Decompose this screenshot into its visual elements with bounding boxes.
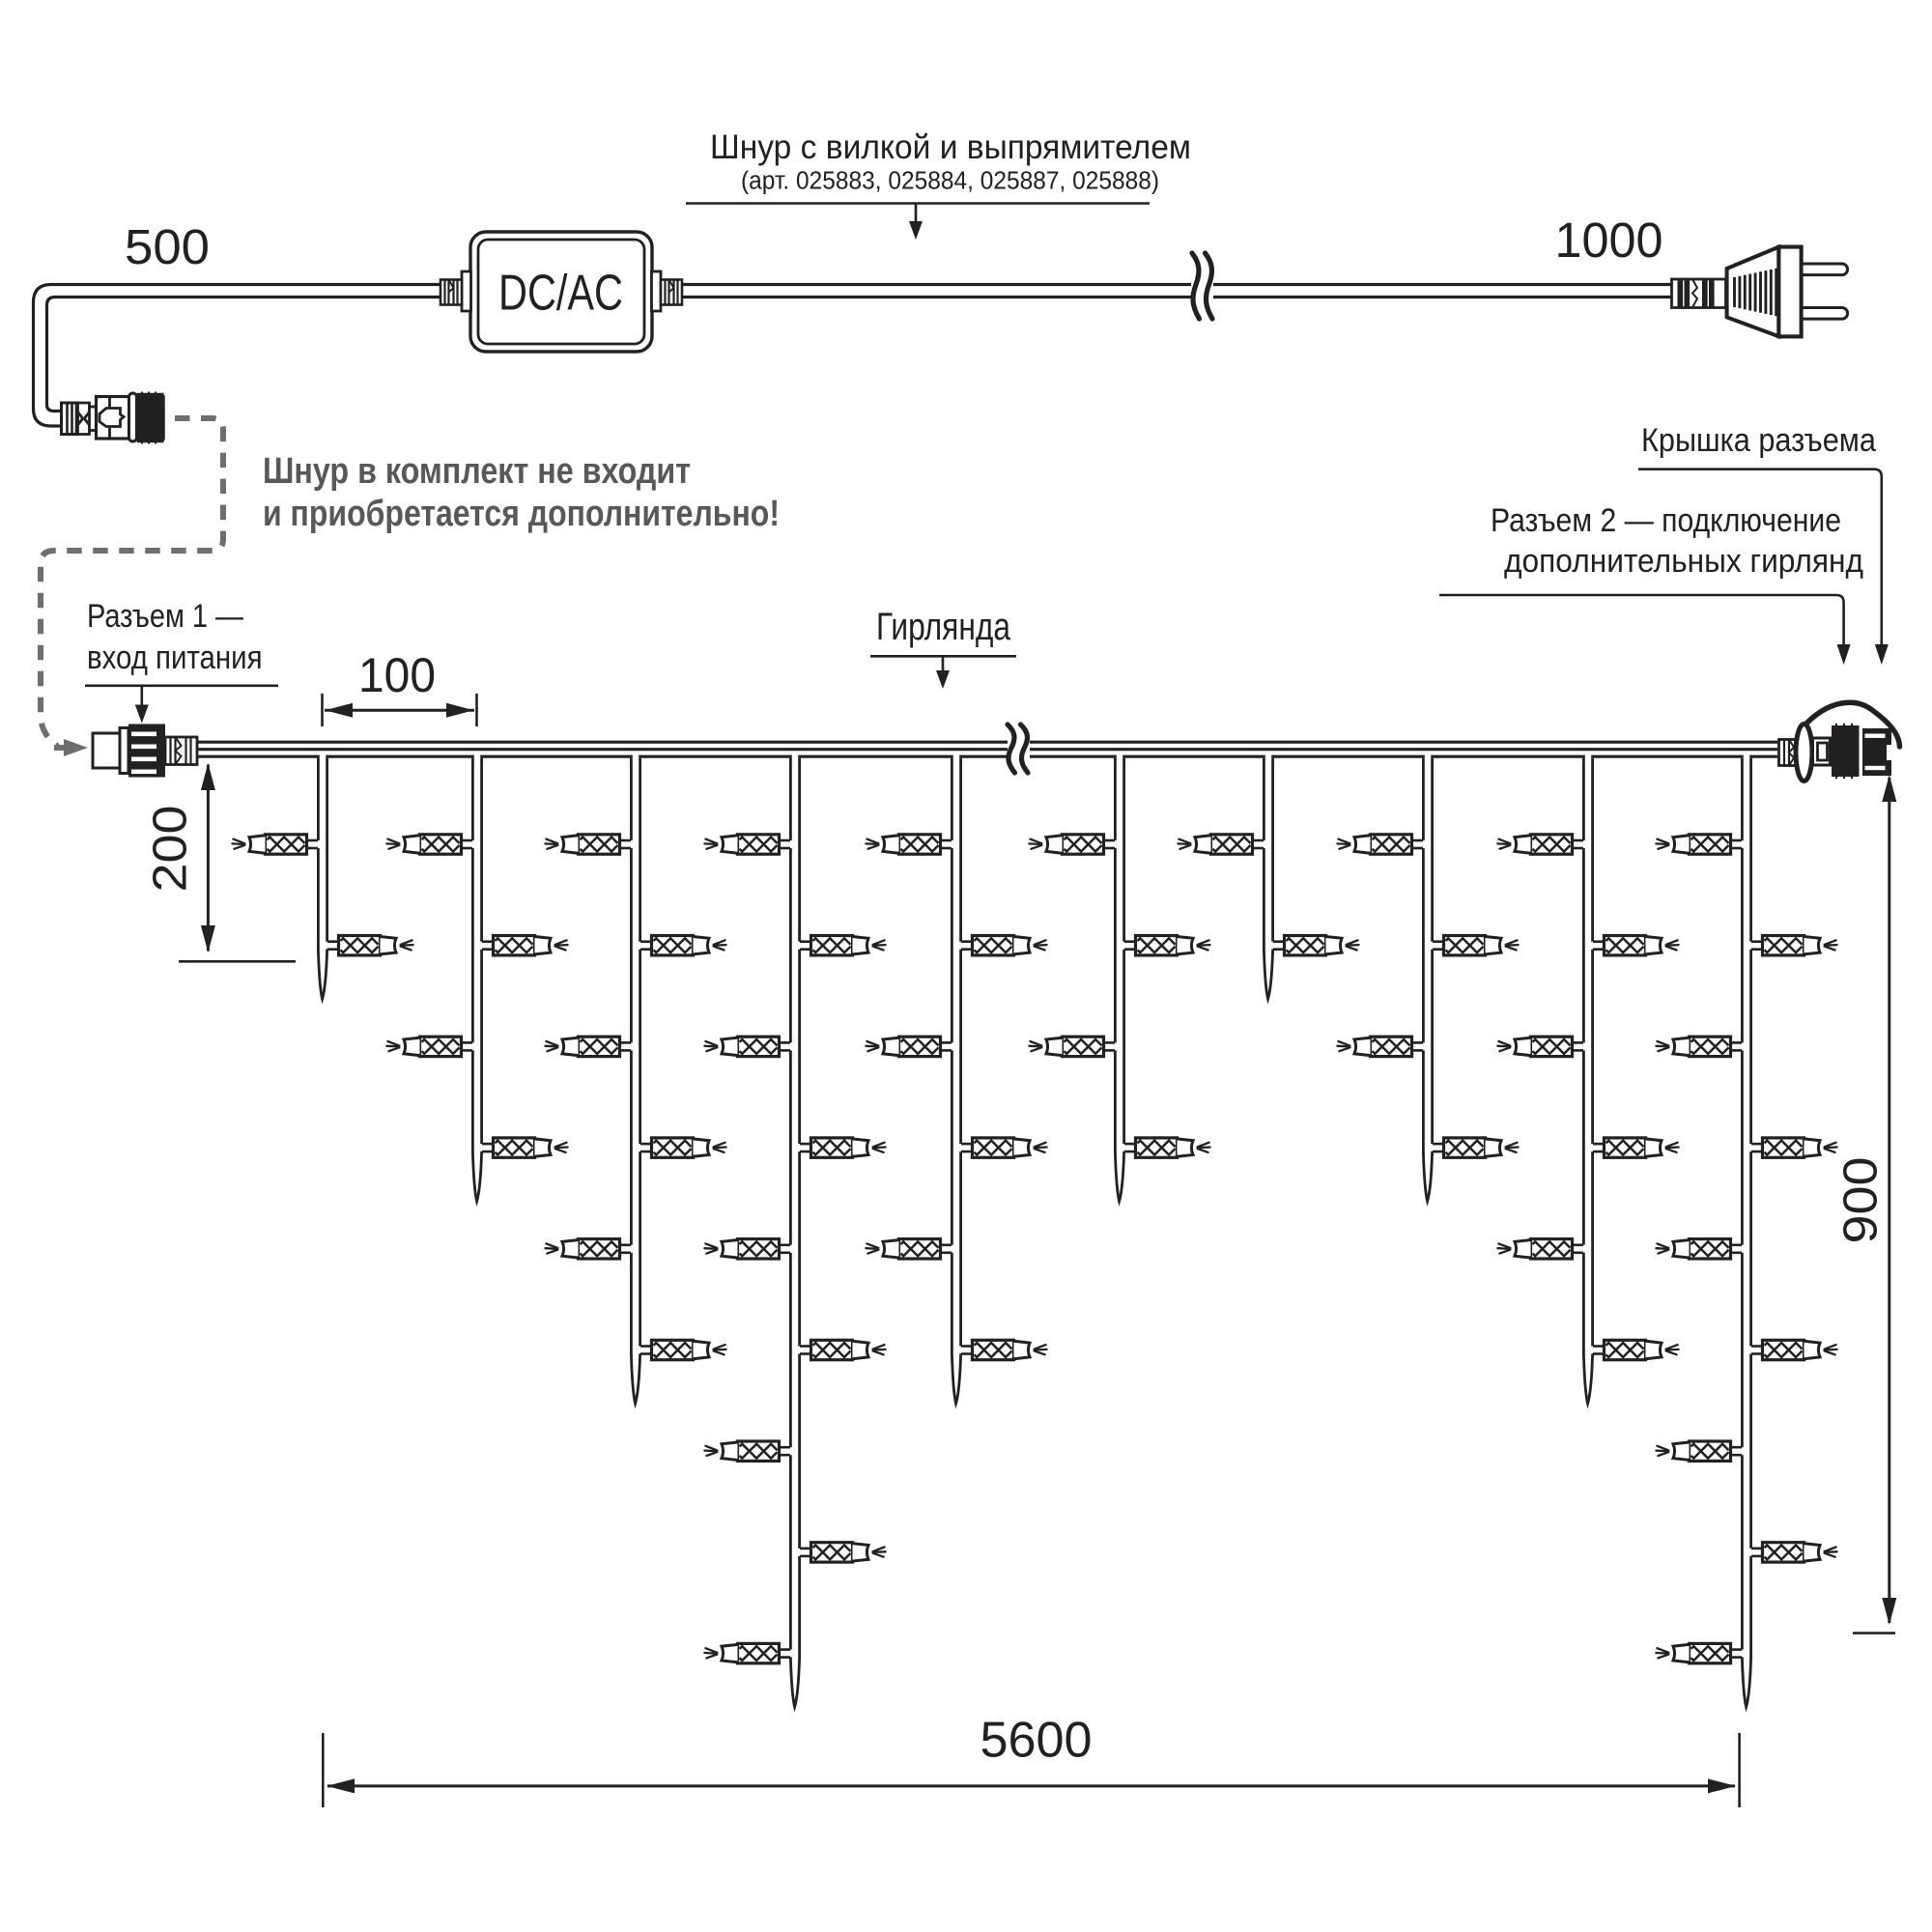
svg-text:1000: 1000	[1555, 213, 1663, 268]
svg-text:900: 900	[1835, 1157, 1888, 1244]
svg-text:Шнур с вилкой и выпрямителем: Шнур с вилкой и выпрямителем	[710, 128, 1191, 166]
svg-text:дополнительных гирлянд: дополнительных гирлянд	[1504, 543, 1863, 580]
svg-text:500: 500	[125, 219, 210, 274]
svg-text:вход питания: вход питания	[87, 639, 263, 676]
svg-text:Гирлянда: Гирлянда	[876, 606, 1011, 648]
svg-text:(арт. 025883, 025884, 025887,: (арт. 025883, 025884, 025887, 025888)	[741, 168, 1159, 195]
svg-text:5600: 5600	[980, 1713, 1093, 1769]
svg-text:и приобретается дополнительно!: и приобретается дополнительно!	[263, 494, 780, 534]
svg-text:200: 200	[144, 806, 196, 893]
svg-text:Разъем 1 —: Разъем 1 —	[87, 598, 243, 635]
svg-text:Крышка разъема: Крышка разъема	[1641, 422, 1876, 459]
svg-text:100: 100	[358, 648, 436, 702]
svg-text:DC/AC: DC/AC	[498, 266, 623, 322]
svg-text:Шнур в комплект не входит: Шнур в комплект не входит	[263, 451, 691, 492]
svg-text:Разъем 2 — подключение: Разъем 2 — подключение	[1491, 502, 1841, 539]
